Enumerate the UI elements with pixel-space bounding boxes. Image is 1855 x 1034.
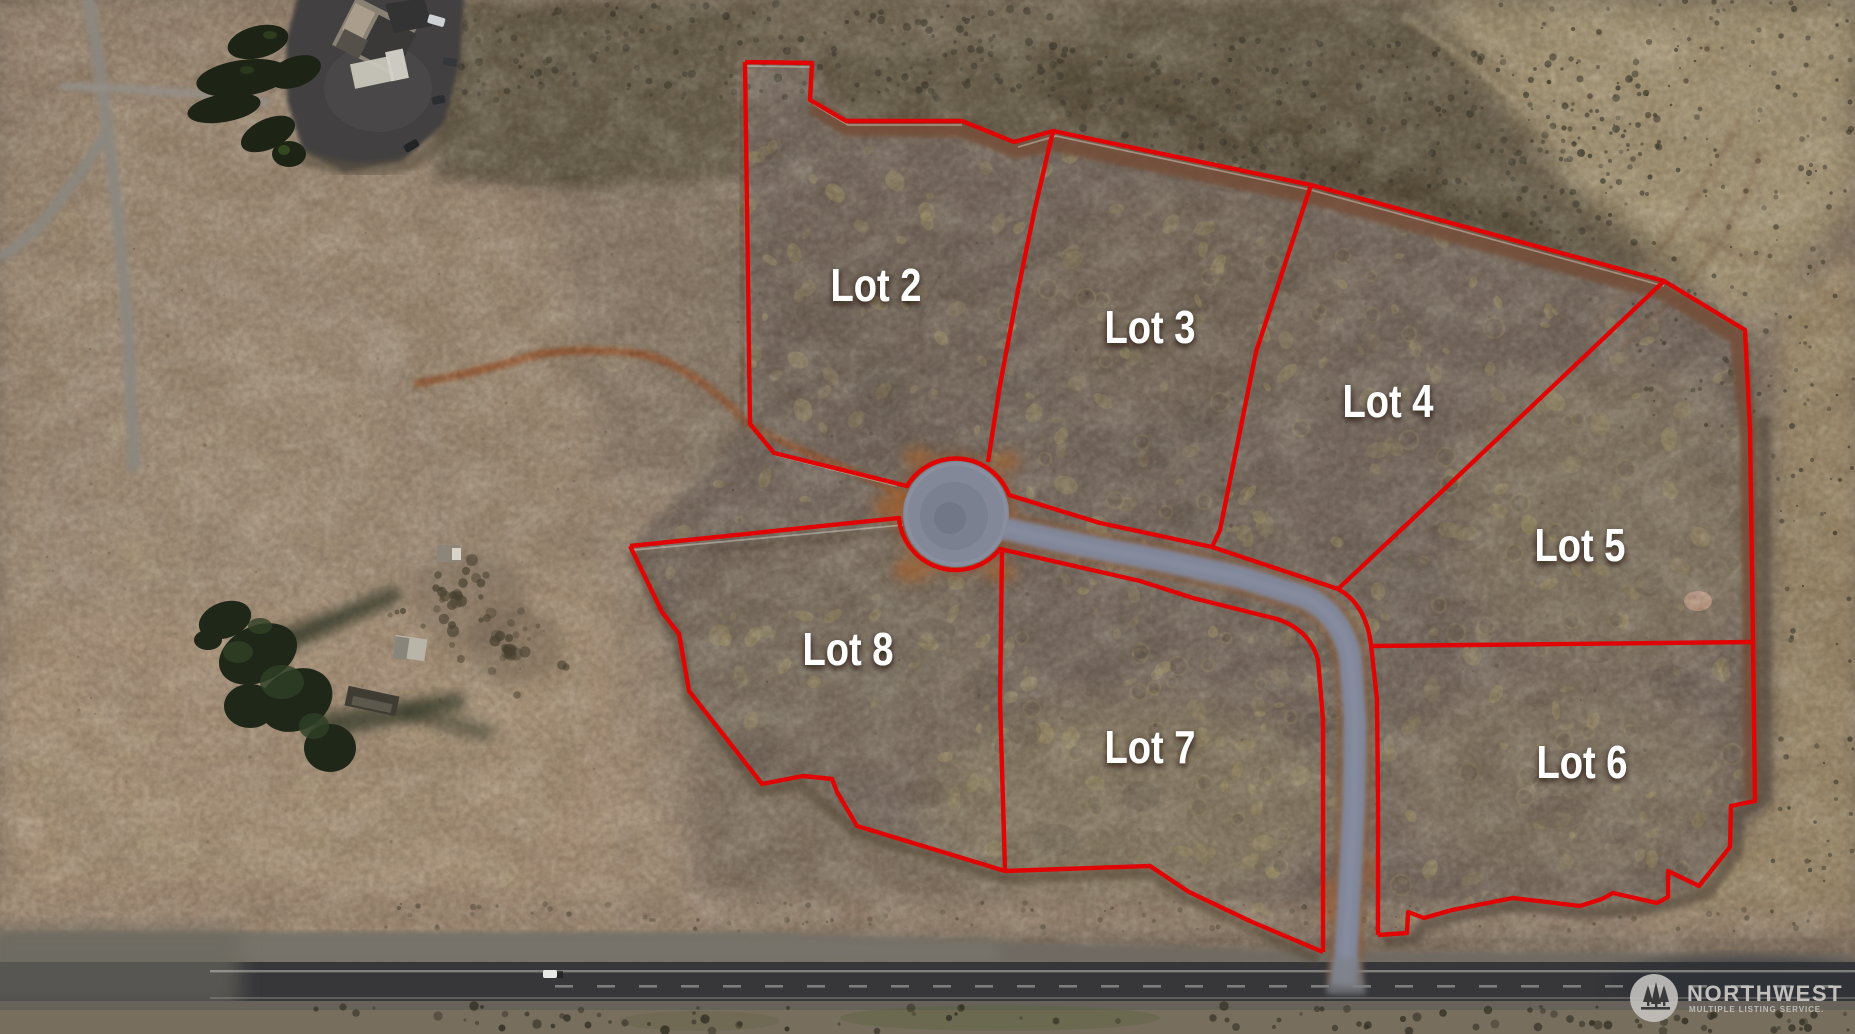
svg-text:Lot 6: Lot 6 — [1537, 736, 1628, 788]
svg-text:Lot 4: Lot 4 — [1343, 375, 1434, 427]
svg-text:Lot 7: Lot 7 — [1105, 721, 1196, 773]
svg-text:Lot 5: Lot 5 — [1535, 519, 1626, 571]
svg-text:MULTIPLE LISTING SERVICE.: MULTIPLE LISTING SERVICE. — [1689, 1005, 1824, 1014]
svg-text:Lot 2: Lot 2 — [831, 259, 922, 311]
svg-text:Lot 3: Lot 3 — [1105, 301, 1196, 353]
svg-text:NORTHWEST: NORTHWEST — [1687, 981, 1843, 1006]
svg-text:Lot 8: Lot 8 — [803, 623, 894, 675]
